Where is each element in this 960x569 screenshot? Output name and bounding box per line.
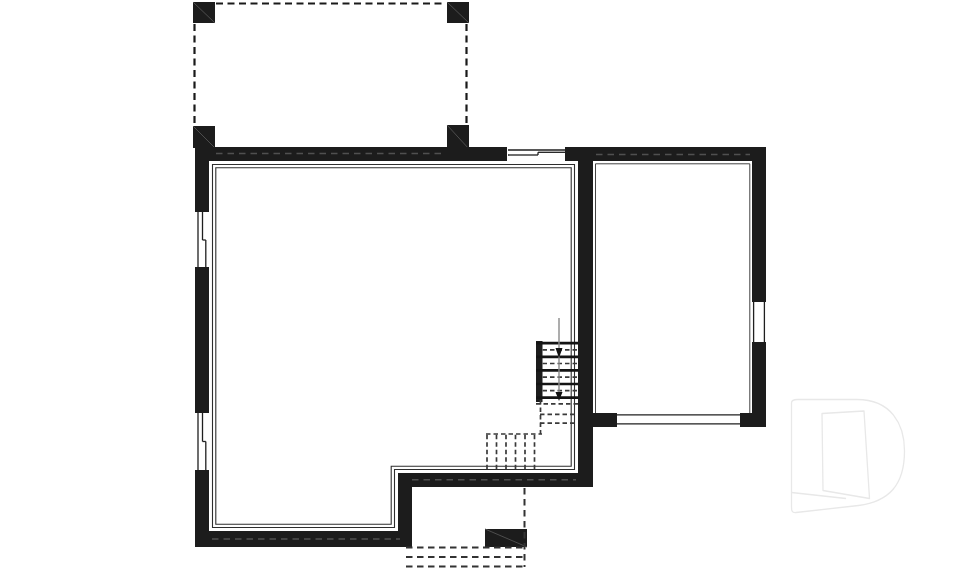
deck-posts [193,2,469,149]
staircase [486,318,578,470]
watermark-inner-d [822,411,870,499]
walls [195,147,766,547]
right-room-bottom-wall-right-stub [740,413,766,427]
interior-dividing-wall [578,147,593,487]
garage-door-opening [617,415,740,424]
floorplan-canvas [0,0,960,569]
right-room-window [754,302,765,342]
right-wall-upper [752,147,766,302]
main-room-inner-line-2 [216,168,571,524]
right-room-inner-line [596,164,750,413]
left-wall-middle [195,267,209,413]
interior-finish-lines [213,164,750,528]
exterior-steps-dashed [406,488,525,567]
left-wall-window-lower [198,413,206,470]
stair-upper-run-dashed [486,434,542,470]
left-wall-window-upper [198,212,206,267]
stair-direction-arrow [556,318,563,401]
top-wall-window [508,150,565,155]
deck-above-outline [195,4,467,126]
right-room-bottom-wall-left-stub [593,413,617,427]
watermark-logo [792,400,905,513]
watermark-outer-d [792,400,905,513]
floorplan-drawing [0,0,960,569]
windows [198,150,764,470]
left-wall-upper [195,147,209,212]
